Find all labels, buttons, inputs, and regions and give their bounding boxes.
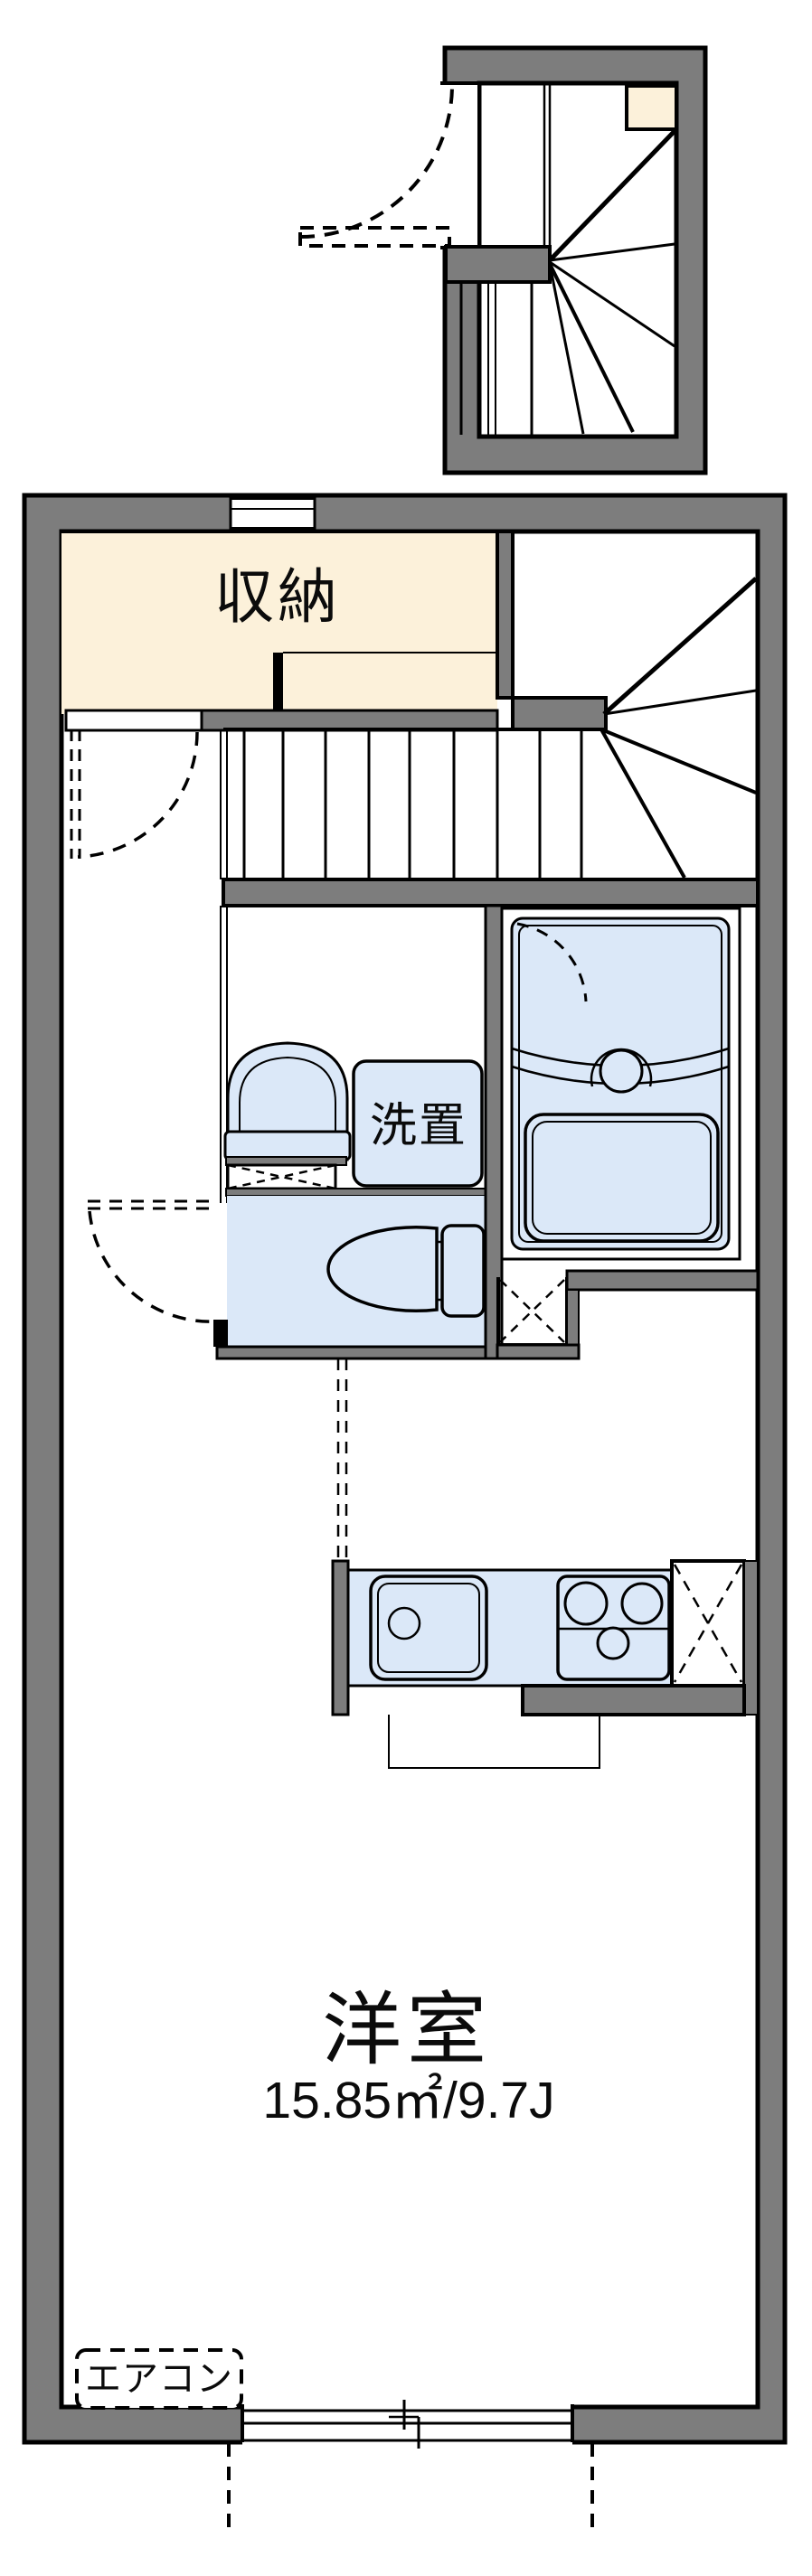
- upper-closet: [627, 86, 676, 129]
- upper-door-opening: [440, 82, 481, 249]
- top-window: [231, 496, 315, 531]
- stairs-bottom-wall: [223, 879, 758, 906]
- washing-machine: [225, 1043, 350, 1160]
- upper-stairwell: [300, 48, 705, 473]
- bottom-window: [242, 2400, 572, 2449]
- bathtub: [525, 1114, 718, 1241]
- bathroom: [502, 908, 740, 1259]
- washer-pan-x: [226, 1157, 346, 1189]
- washer-place-box: 洗置: [354, 1061, 482, 1186]
- main-unit: 収納: [24, 495, 785, 2529]
- aircon-box: エアコン: [77, 2350, 241, 2408]
- bath-faucet: [600, 1050, 642, 1092]
- floor-plan: 収納: [0, 0, 812, 2576]
- balcony-dash-lines: [229, 2443, 592, 2529]
- storage-label: 収納: [214, 563, 341, 630]
- stairs-landing: [513, 698, 606, 729]
- aircon-label: エアコン: [85, 2359, 233, 2399]
- upper-stairs-landing: [446, 247, 550, 282]
- floor-plan-drawing: 収納: [0, 0, 812, 2576]
- stove: [558, 1576, 669, 1679]
- washer-place-label: 洗置: [370, 1100, 467, 1152]
- fridge-space-x: [672, 1561, 744, 1686]
- main-room-label: 洋室: [322, 1985, 492, 2074]
- kitchen-sink: [371, 1576, 486, 1679]
- storage-opening: [66, 710, 202, 730]
- main-room-area-label: 15.85㎡/9.7J: [262, 2072, 554, 2129]
- storage-room: 収納: [61, 531, 513, 730]
- upper-door-arc: [300, 85, 452, 246]
